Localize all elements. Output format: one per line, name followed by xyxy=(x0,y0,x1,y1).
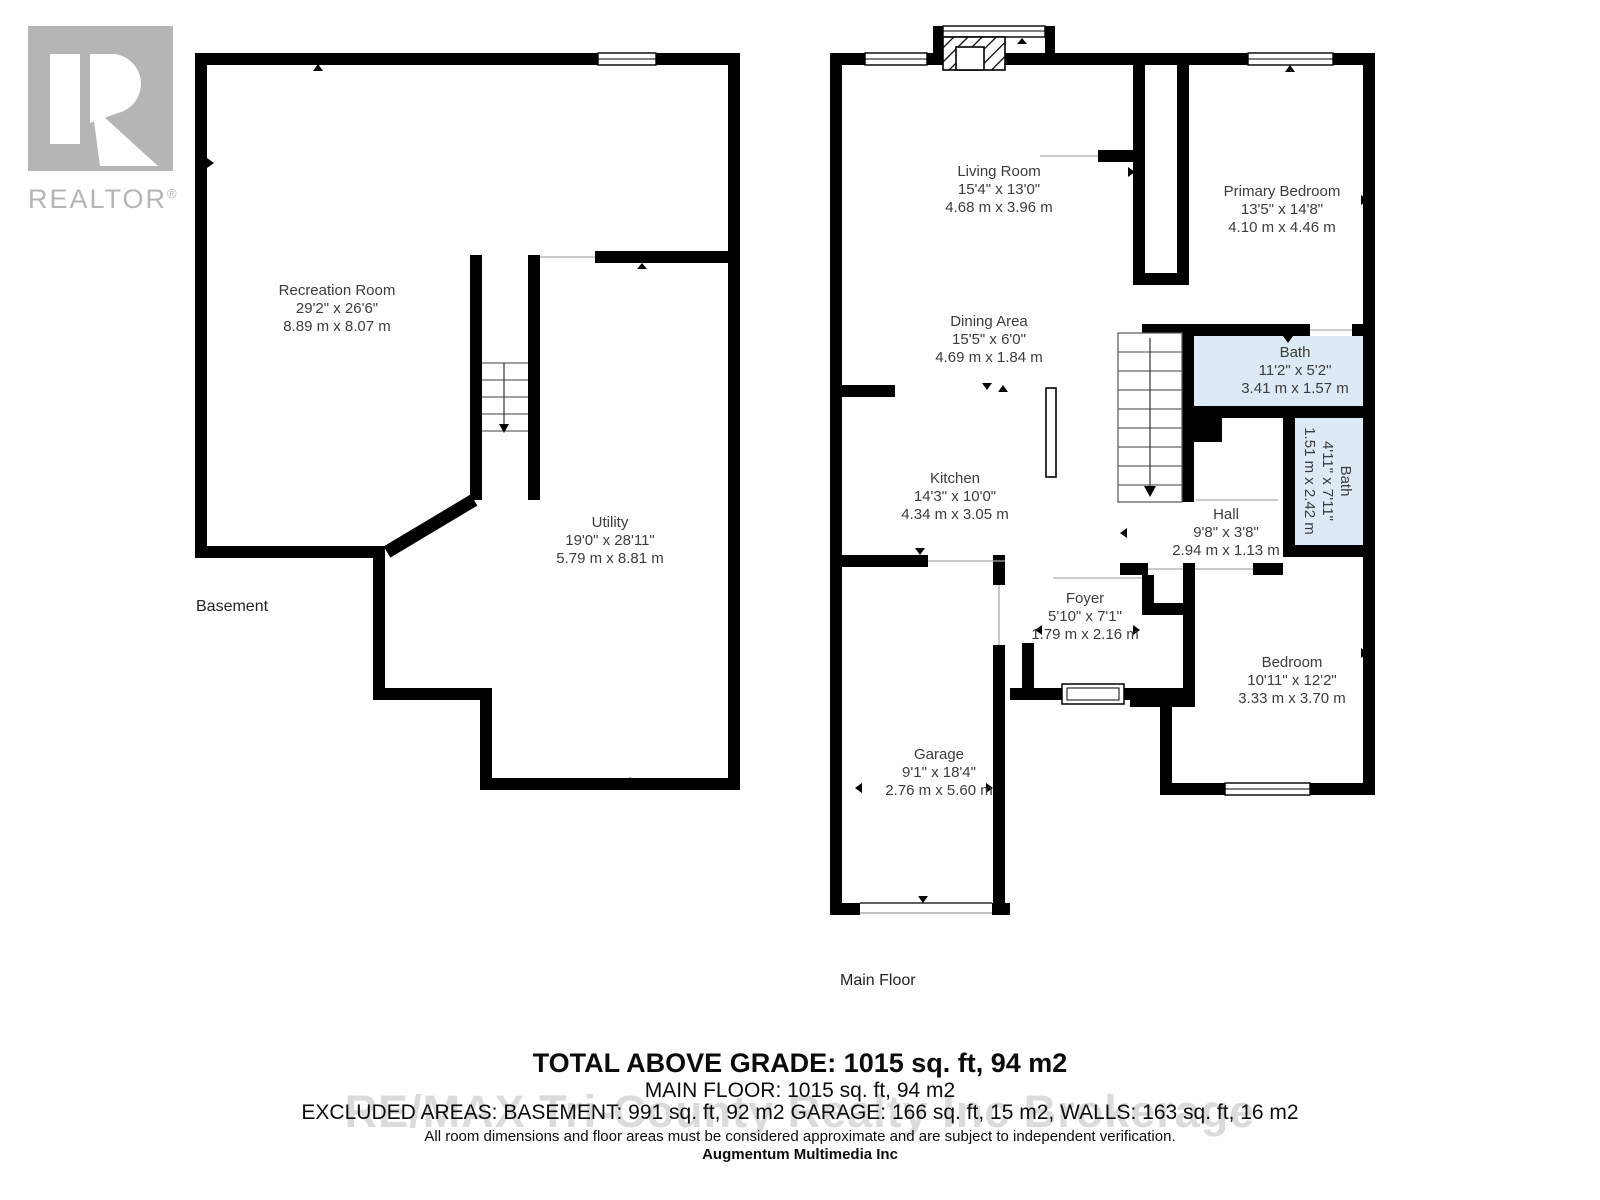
room-label-foyer: Foyer 5'10" x 7'1" 1.79 m x 2.16 m xyxy=(1031,590,1139,644)
room-label-living-room: Living Room 15'4" x 13'0" 4.68 m x 3.96 … xyxy=(945,163,1053,217)
room-size-imperial: 15'5" x 6'0" xyxy=(935,331,1043,349)
room-name: Primary Bedroom xyxy=(1224,183,1341,201)
basement-floor-label: Basement xyxy=(196,598,268,616)
room-label-primary-bedroom: Primary Bedroom 13'5" x 14'8" 4.10 m x 4… xyxy=(1224,183,1341,237)
room-name: Living Room xyxy=(945,163,1053,181)
room-size-metric: 1.51 m x 2.42 m xyxy=(1300,427,1318,535)
room-name: Recreation Room xyxy=(279,282,396,300)
basement-dimension-arrows xyxy=(207,64,647,784)
room-size-metric: 3.41 m x 1.57 m xyxy=(1241,380,1349,398)
room-size-imperial: 13'5" x 14'8" xyxy=(1224,201,1341,219)
room-label-hall: Hall 9'8" x 3'8" 2.94 m x 1.13 m xyxy=(1172,506,1280,560)
room-label-garage: Garage 9'1" x 18'4" 2.76 m x 5.60 m xyxy=(885,746,993,800)
room-label-recreation-room: Recreation Room 29'2" x 26'6" 8.89 m x 8… xyxy=(279,282,396,336)
room-name: Hall xyxy=(1172,506,1280,524)
room-size-metric: 3.33 m x 3.70 m xyxy=(1238,690,1346,708)
registered-mark: ® xyxy=(167,186,177,201)
basement-angled-wall xyxy=(387,500,474,552)
room-size-imperial: 15'4" x 13'0" xyxy=(945,181,1053,199)
main-floor-area-text: MAIN FLOOR: 1015 sq. ft, 94 m2 xyxy=(0,1079,1600,1103)
main-floor-label: Main Floor xyxy=(840,972,916,990)
room-label-kitchen: Kitchen 14'3" x 10'0" 4.34 m x 3.05 m xyxy=(901,470,1009,524)
room-name: Kitchen xyxy=(901,470,1009,488)
room-size-imperial: 9'1" x 18'4" xyxy=(885,764,993,782)
room-size-imperial: 9'8" x 3'8" xyxy=(1172,524,1280,542)
room-size-metric: 2.76 m x 5.60 m xyxy=(885,782,993,800)
room-size-imperial: 10'11" x 12'2" xyxy=(1238,672,1346,690)
room-size-metric: 8.89 m x 8.07 m xyxy=(279,318,396,336)
room-size-imperial: 19'0" x 28'11" xyxy=(556,532,664,550)
room-size-metric: 4.69 m x 1.84 m xyxy=(935,349,1043,367)
room-name: Bath xyxy=(1241,344,1349,362)
total-above-grade-text: TOTAL ABOVE GRADE: 1015 sq. ft, 94 m2 xyxy=(0,1048,1600,1079)
stairs-main xyxy=(1118,333,1182,502)
basement-walls xyxy=(195,53,740,790)
realtor-logo: REALTOR® xyxy=(28,26,178,215)
room-label-bath-small: Bath 4'11" x 7'11" 1.51 m x 2.42 m xyxy=(1300,427,1354,535)
room-name: Bath xyxy=(1336,427,1354,535)
room-label-dining-area: Dining Area 15'5" x 6'0" 4.69 m x 1.84 m xyxy=(935,313,1043,367)
room-size-metric: 2.94 m x 1.13 m xyxy=(1172,542,1280,560)
media-credit-text: Augmentum Multimedia Inc xyxy=(0,1146,1600,1163)
room-label-utility: Utility 19'0" x 28'11" 5.79 m x 8.81 m xyxy=(556,514,664,568)
stairs-basement xyxy=(482,363,528,433)
room-size-metric: 1.79 m x 2.16 m xyxy=(1031,626,1139,644)
front-door xyxy=(1062,684,1124,704)
room-size-imperial: 5'10" x 7'1" xyxy=(1031,608,1139,626)
kitchen-counter xyxy=(1046,388,1056,477)
room-size-imperial: 14'3" x 10'0" xyxy=(901,488,1009,506)
realtor-r-icon xyxy=(28,26,173,171)
room-size-imperial: 29'2" x 26'6" xyxy=(279,300,396,318)
basement-window xyxy=(598,53,656,65)
realtor-wordmark: REALTOR xyxy=(28,184,167,214)
room-size-metric: 4.34 m x 3.05 m xyxy=(901,506,1009,524)
room-name: Dining Area xyxy=(935,313,1043,331)
room-size-metric: 4.10 m x 4.46 m xyxy=(1224,219,1341,237)
room-label-bath-main: Bath 11'2" x 5'2" 3.41 m x 1.57 m xyxy=(1241,344,1349,398)
room-label-bedroom: Bedroom 10'11" x 12'2" 3.33 m x 3.70 m xyxy=(1238,654,1346,708)
room-size-metric: 4.68 m x 3.96 m xyxy=(945,199,1053,217)
room-name: Foyer xyxy=(1031,590,1139,608)
room-size-metric: 5.79 m x 8.81 m xyxy=(556,550,664,568)
excluded-areas-text: EXCLUDED AREAS: BASEMENT: 991 sq. ft, 92… xyxy=(0,1101,1600,1125)
room-name: Bedroom xyxy=(1238,654,1346,672)
garage-door xyxy=(860,901,992,917)
room-size-imperial: 4'11" x 7'11" xyxy=(1318,427,1336,535)
fireplace-chimney xyxy=(925,26,1060,70)
disclaimer-text: All room dimensions and floor areas must… xyxy=(0,1128,1600,1145)
room-name: Utility xyxy=(556,514,664,532)
realtor-logo-text: REALTOR® xyxy=(28,184,178,215)
room-name: Garage xyxy=(885,746,993,764)
floorplan-page: REALTOR® xyxy=(0,0,1600,1200)
room-size-imperial: 11'2" x 5'2" xyxy=(1241,362,1349,380)
